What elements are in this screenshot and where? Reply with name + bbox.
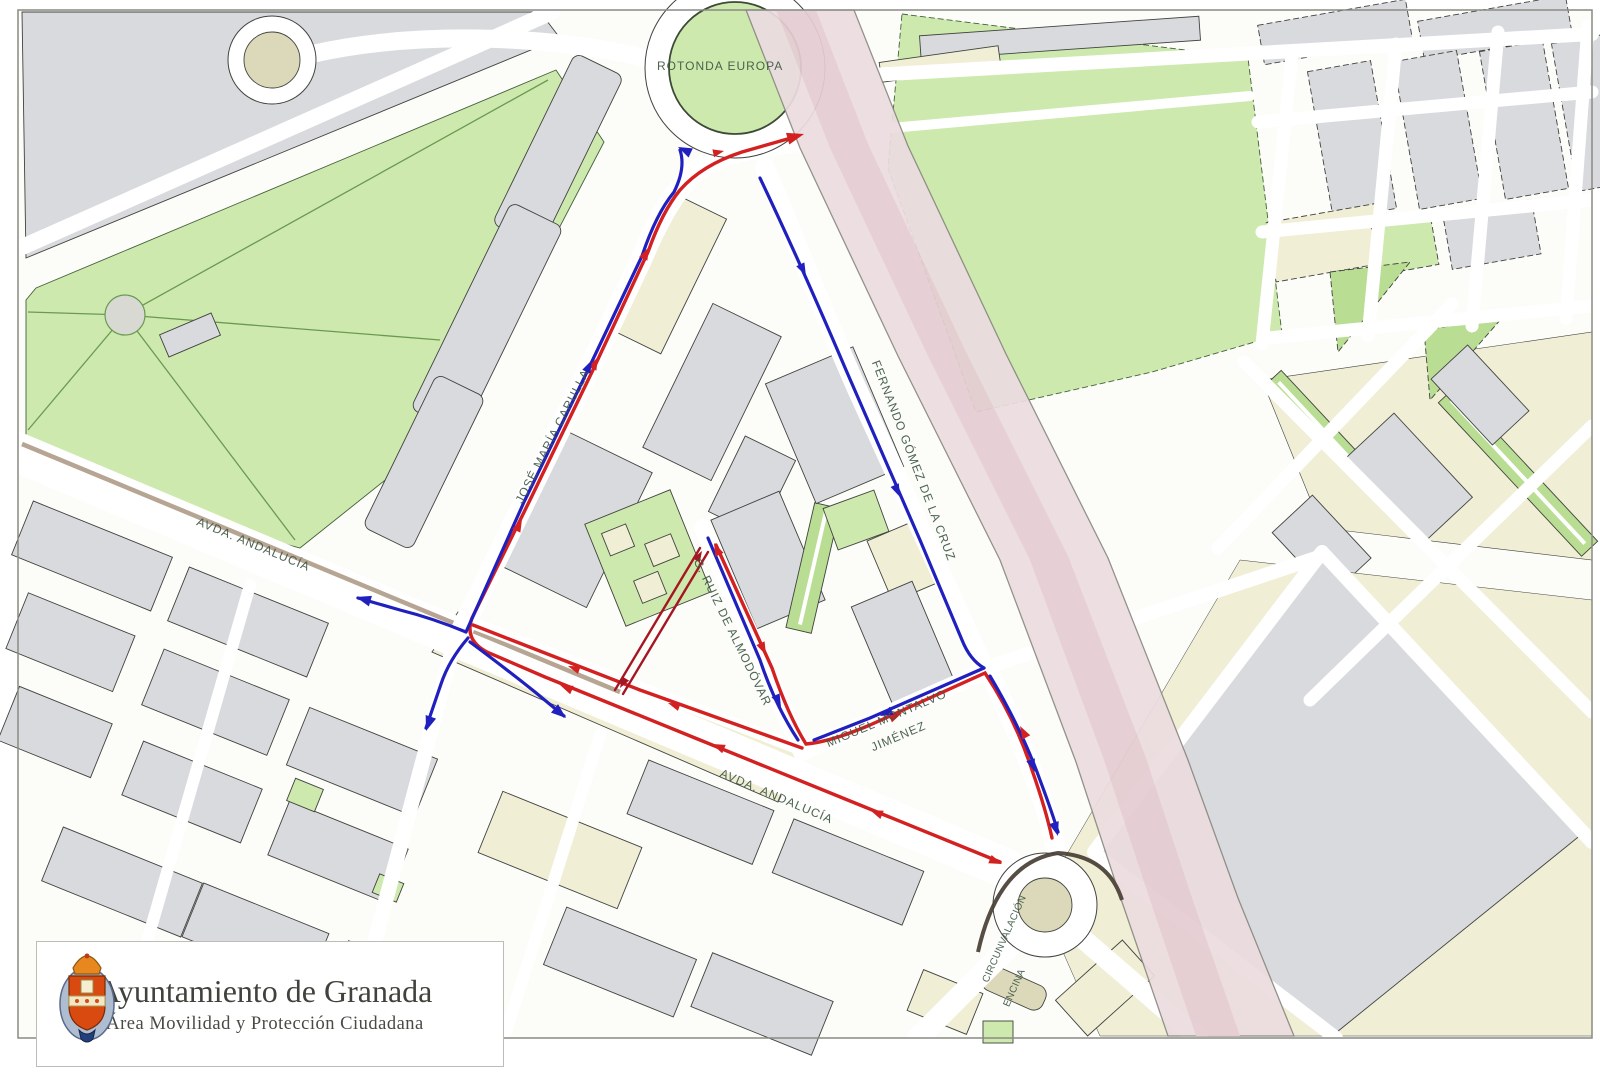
city-map: ROTONDA EUROPA JOSÉ MARÍA CARULLA FERNAN…: [0, 0, 1600, 1068]
granada-coat-of-arms-icon: [55, 942, 119, 1046]
south-roundabout: [1018, 878, 1072, 932]
agency-logo-card: Ayuntamiento de Granada Área Movilidad y…: [36, 941, 504, 1067]
map-block: [983, 1021, 1013, 1043]
park-plaza: [105, 295, 145, 335]
traffic-diversion-map-page: ROTONDA EUROPA JOSÉ MARÍA CARULLA FERNAN…: [0, 0, 1600, 1068]
label-rotonda-europa: ROTONDA EUROPA: [657, 59, 783, 73]
small-roundabout: [244, 32, 300, 88]
